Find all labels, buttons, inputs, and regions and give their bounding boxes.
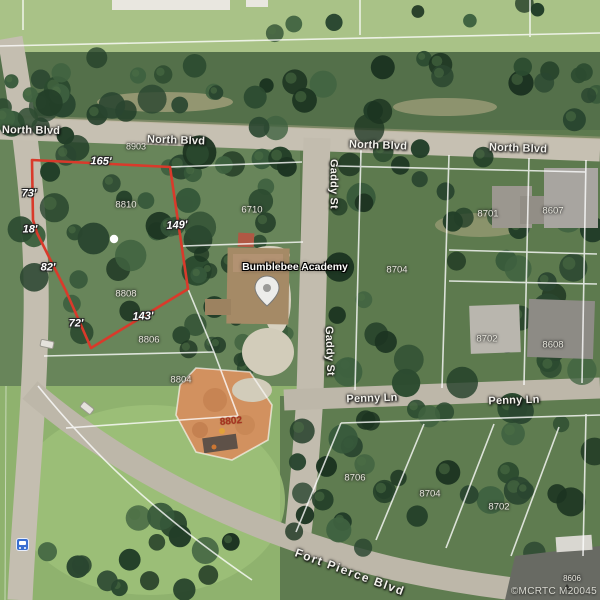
house-8608 (527, 299, 595, 359)
house-8702 (469, 304, 521, 354)
house-8607 (544, 168, 598, 228)
subject-point-dot (110, 235, 118, 243)
bus-stop-icon (16, 538, 29, 551)
watermark: ©MCRTC M20045 (511, 586, 597, 597)
house-bottom-right (556, 535, 593, 552)
aerial-imagery (0, 0, 600, 600)
satellite-map[interactable]: North Blvd North Blvd North Blvd North B… (0, 0, 600, 600)
